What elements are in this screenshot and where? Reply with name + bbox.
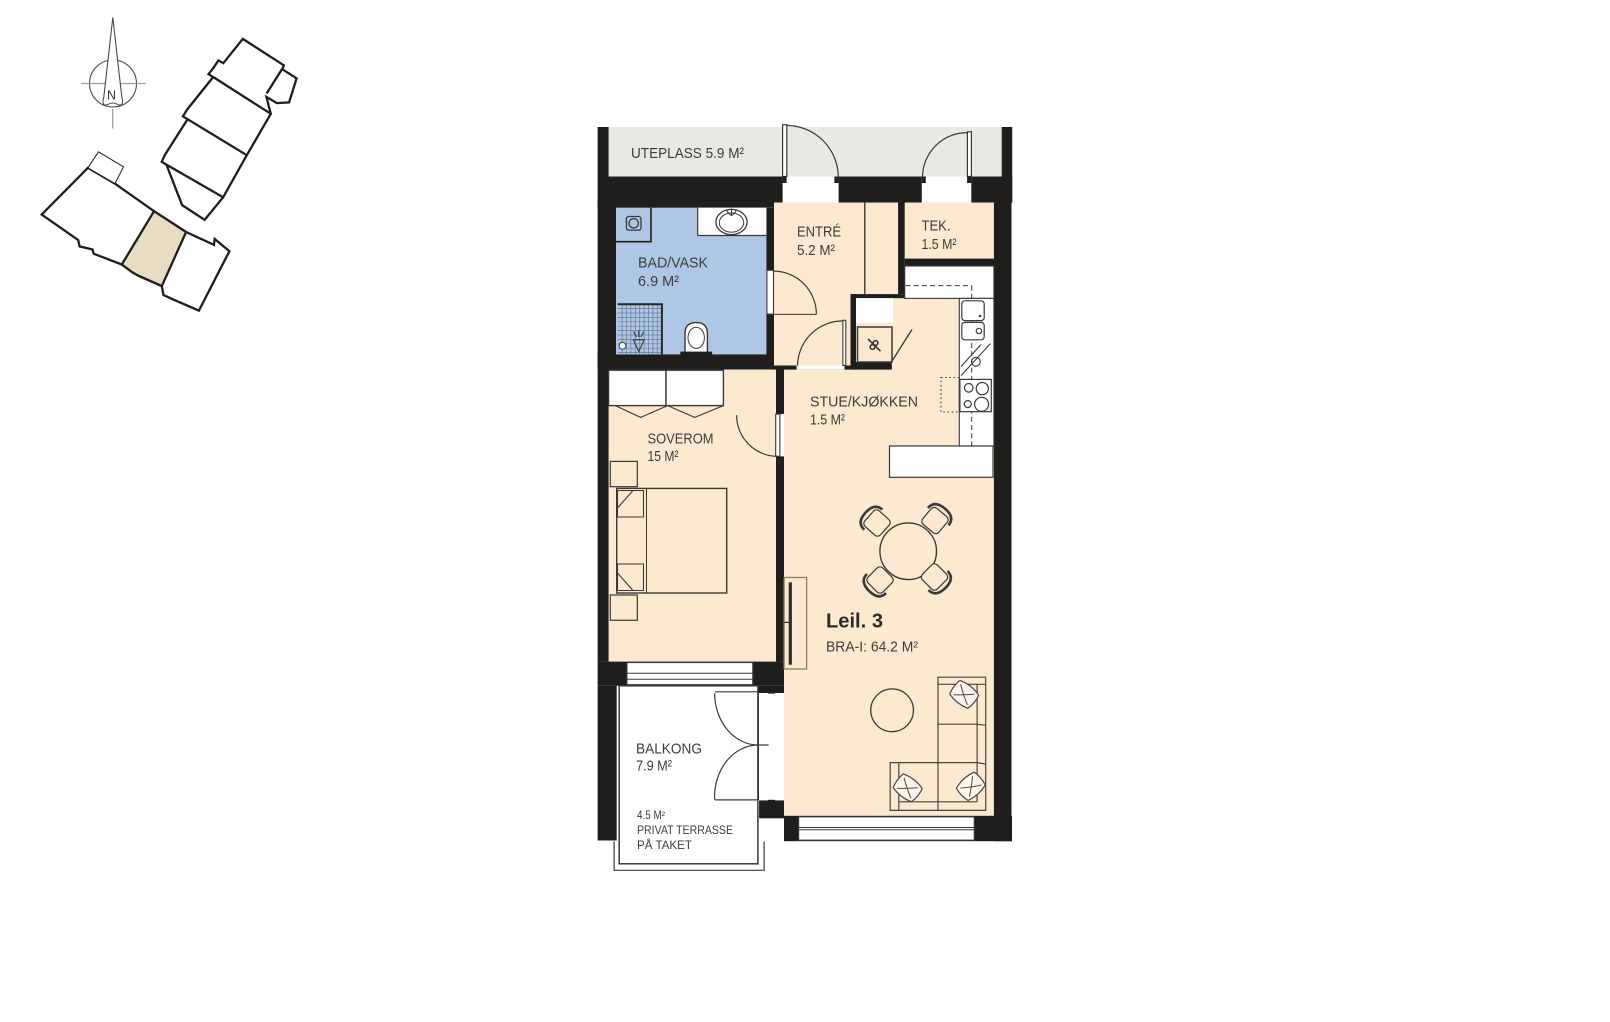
svg-text:STUE/KJØKKEN: STUE/KJØKKEN bbox=[810, 394, 918, 411]
svg-text:SOVEROM: SOVEROM bbox=[648, 431, 714, 448]
svg-text:6.9 M²: 6.9 M² bbox=[638, 273, 679, 290]
svg-text:1.5 M²: 1.5 M² bbox=[810, 412, 845, 429]
svg-text:PRIVAT TERRASSE: PRIVAT TERRASSE bbox=[637, 825, 733, 837]
svg-text:ENTRÉ: ENTRÉ bbox=[797, 224, 841, 241]
svg-text:TEK.: TEK. bbox=[922, 218, 951, 235]
svg-text:15 M²: 15 M² bbox=[648, 448, 679, 465]
svg-text:5.2 M²: 5.2 M² bbox=[797, 242, 835, 259]
svg-text:N: N bbox=[107, 89, 116, 103]
svg-text:4.5 M²: 4.5 M² bbox=[637, 810, 665, 822]
svg-text:BALKONG: BALKONG bbox=[636, 741, 702, 758]
svg-text:UTEPLASS 5.9 M²: UTEPLASS 5.9 M² bbox=[631, 145, 744, 162]
svg-text:1.5 M²: 1.5 M² bbox=[922, 236, 957, 253]
svg-text:BRA-I: 64.2 M²: BRA-I: 64.2 M² bbox=[826, 640, 918, 656]
svg-text:PÅ TAKET: PÅ TAKET bbox=[637, 839, 692, 852]
svg-text:7.9 M²: 7.9 M² bbox=[636, 758, 672, 775]
svg-text:Leil. 3: Leil. 3 bbox=[826, 610, 883, 633]
svg-text:BAD/VASK: BAD/VASK bbox=[638, 255, 708, 272]
